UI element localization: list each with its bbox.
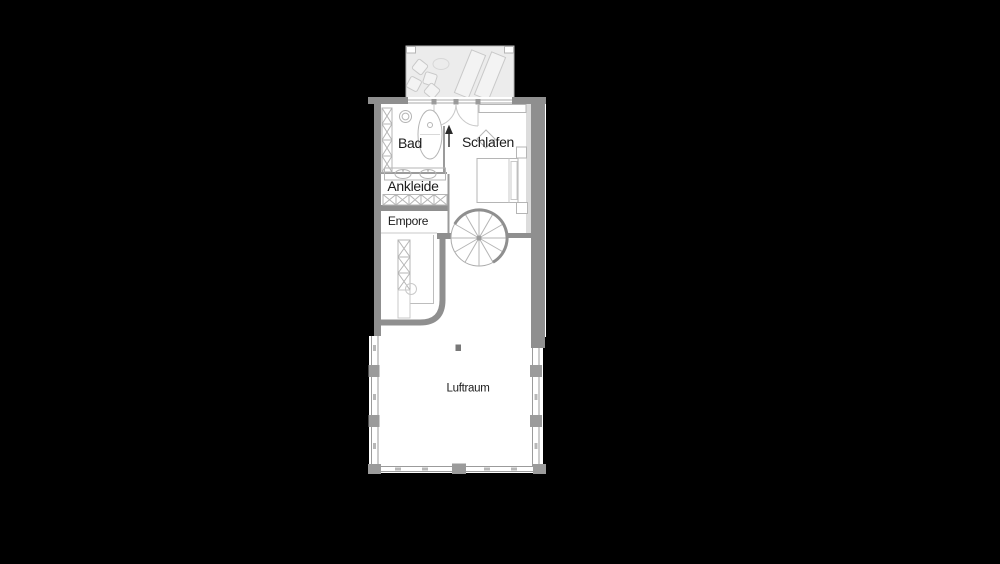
nightstand: [517, 147, 527, 158]
balcony-corner-tab: [505, 47, 514, 54]
balcony: [406, 46, 514, 100]
room-label-schlafen: Schlafen: [462, 135, 514, 149]
floorplan-drawing: [0, 0, 1000, 564]
room-label-luftraum: Luftraum: [447, 383, 490, 395]
room-label-empore: Empore: [388, 215, 428, 227]
ankleide-schlafen-wall: [448, 174, 450, 233]
bed-icon: [477, 159, 518, 203]
shelf: [479, 105, 526, 113]
bad-schlafen-wall: [443, 126, 445, 173]
room-label-ankleide: Ankleide: [387, 179, 438, 193]
floorplan-canvas: Bad Schlafen Ankleide Empore Luftraum: [0, 0, 1000, 564]
nightstand: [517, 203, 528, 214]
spiral-staircase-icon: [451, 210, 507, 266]
room-label-bad: Bad: [398, 136, 422, 150]
empore-edge-line: [381, 233, 437, 234]
balcony-corner-tab: [407, 47, 416, 54]
column-marker: [456, 345, 462, 352]
